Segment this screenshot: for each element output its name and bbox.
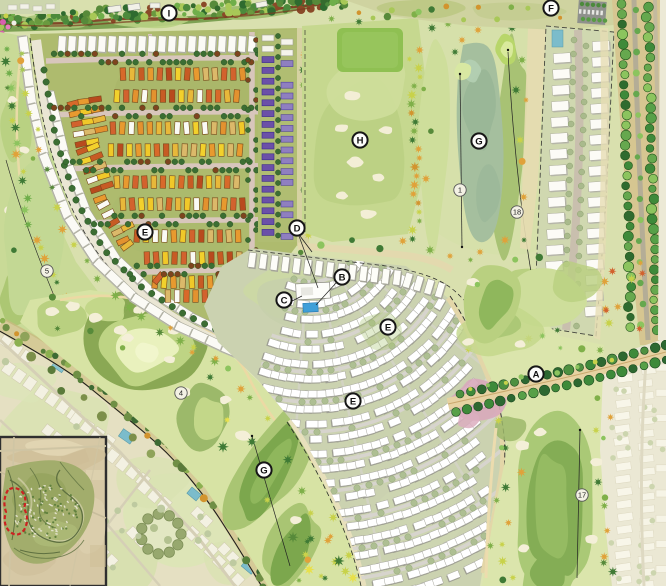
svg-text:B: B	[339, 272, 346, 283]
svg-text:I: I	[168, 8, 171, 19]
svg-text:5: 5	[45, 267, 49, 276]
svg-text:E: E	[350, 396, 356, 407]
svg-text:A: A	[533, 369, 540, 380]
svg-text:E: E	[142, 227, 148, 238]
svg-text:17: 17	[578, 491, 586, 500]
svg-text:G: G	[260, 465, 267, 476]
svg-text:E: E	[385, 322, 391, 333]
svg-text:C: C	[281, 295, 288, 306]
svg-text:4: 4	[179, 389, 183, 398]
svg-text:H: H	[357, 135, 364, 146]
svg-text:D: D	[294, 223, 301, 234]
svg-text:1: 1	[458, 186, 462, 195]
svg-text:18: 18	[513, 208, 521, 217]
svg-text:G: G	[475, 136, 482, 147]
svg-text:F: F	[548, 3, 554, 14]
